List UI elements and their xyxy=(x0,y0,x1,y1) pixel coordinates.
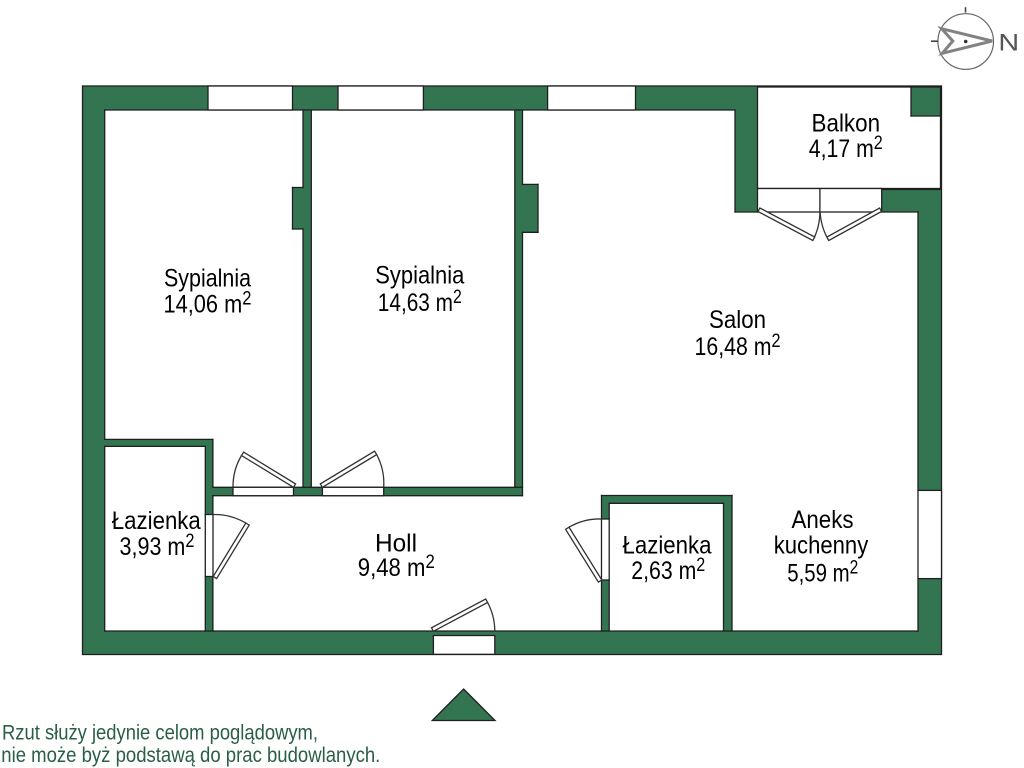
svg-text:Sypialnia: Sypialnia xyxy=(375,262,464,290)
svg-text:kuchenny: kuchenny xyxy=(774,532,869,560)
svg-text:4,17 m2: 4,17 m2 xyxy=(809,133,883,163)
svg-text:3,93 m2: 3,93 m2 xyxy=(120,531,195,561)
svg-text:Salon: Salon xyxy=(709,306,766,334)
svg-text:2,63 m2: 2,63 m2 xyxy=(631,555,705,585)
svg-text:5,59 m2: 5,59 m2 xyxy=(787,557,858,587)
svg-text:14,06 m2: 14,06 m2 xyxy=(164,288,252,318)
svg-text:N: N xyxy=(998,29,1019,56)
svg-text:nie może byż podstawą do prac: nie może byż podstawą do prac budowlanyc… xyxy=(1,744,380,767)
svg-text:Aneks: Aneks xyxy=(792,506,854,534)
svg-text:Rzut służy jedynie celom poglą: Rzut służy jedynie celom poglądowym, xyxy=(2,722,318,745)
svg-text:14,63 m2: 14,63 m2 xyxy=(378,287,462,317)
svg-text:Sypialnia: Sypialnia xyxy=(164,265,251,293)
svg-text:9,48 m2: 9,48 m2 xyxy=(358,552,435,582)
svg-text:16,48 m2: 16,48 m2 xyxy=(695,331,781,361)
svg-text:Balkon: Balkon xyxy=(812,110,881,138)
